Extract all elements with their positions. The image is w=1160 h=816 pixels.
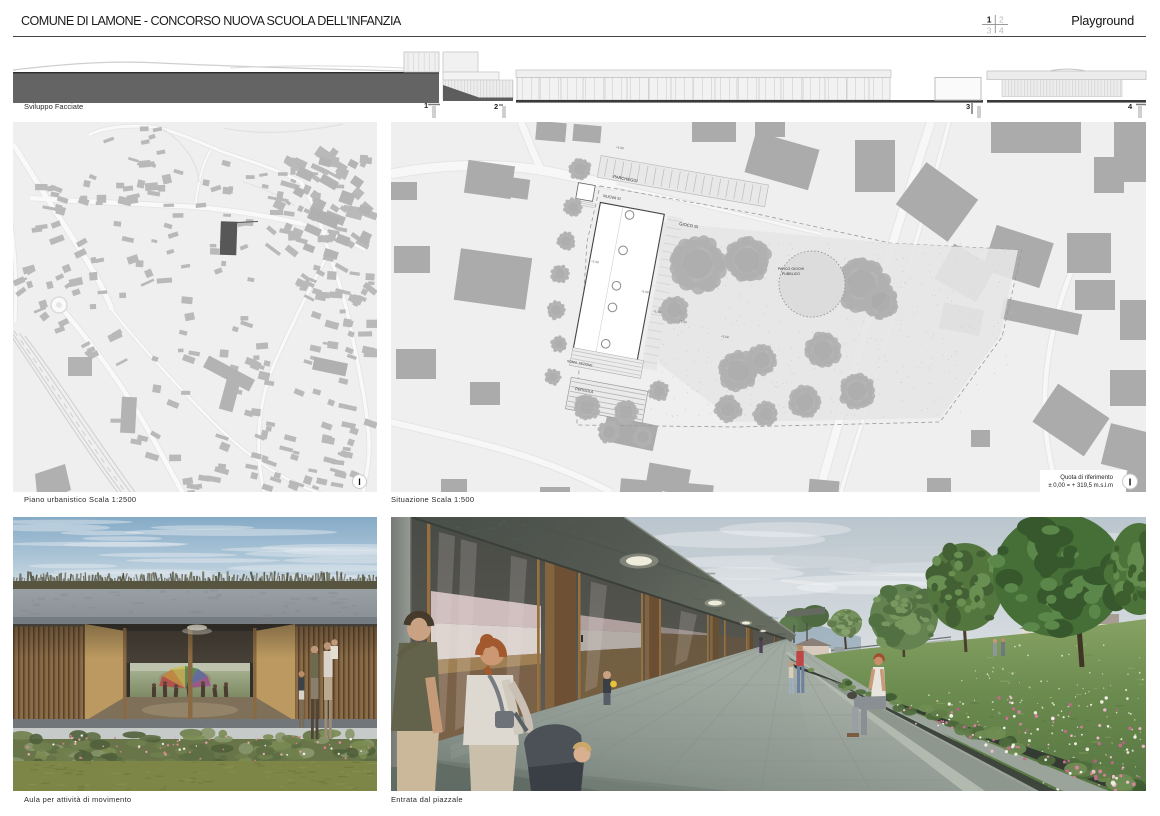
svg-text:PARCO GIOCHI: PARCO GIOCHI [778,267,804,271]
svg-text:I: I [1129,478,1132,489]
svg-text:I: I [358,477,361,487]
svg-text:3: 3 [966,102,970,111]
svg-text:± 0,00 = + 319,5 m.s.l.m: ± 0,00 = + 319,5 m.s.l.m [1048,483,1113,489]
svg-text:Quota di riferimento: Quota di riferimento [1060,475,1113,481]
svg-text:1: 1 [424,101,428,110]
svg-text:PUBBLICO: PUBBLICO [782,272,800,276]
svg-text:4: 4 [1128,102,1133,111]
svg-text:Sviluppo Facciate: Sviluppo Facciate [24,102,83,111]
svg-text:2: 2 [494,102,498,111]
